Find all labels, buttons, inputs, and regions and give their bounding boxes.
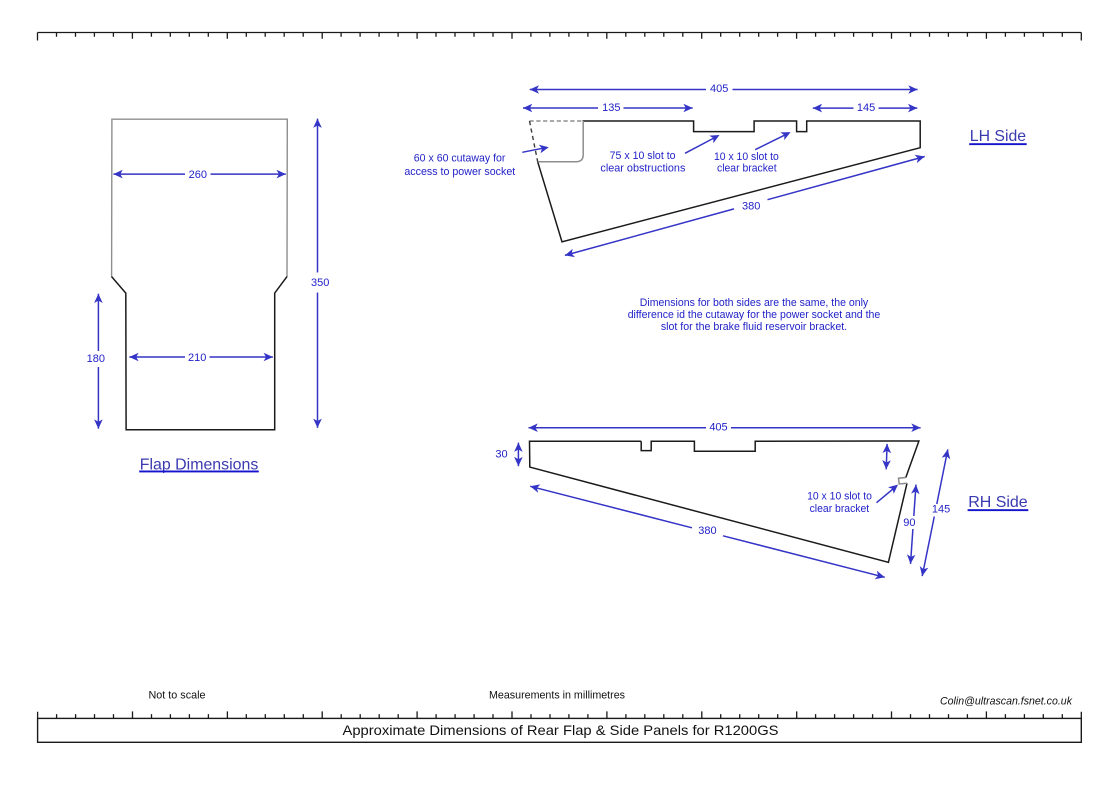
svg-text:30: 30 bbox=[495, 448, 507, 460]
svg-text:405: 405 bbox=[709, 421, 727, 433]
svg-text:135: 135 bbox=[602, 102, 620, 114]
svg-text:90: 90 bbox=[903, 517, 915, 529]
svg-text:clear bracket: clear bracket bbox=[810, 503, 870, 515]
svg-text:145: 145 bbox=[857, 102, 875, 114]
svg-text:380: 380 bbox=[698, 525, 716, 537]
svg-text:Colin@ultrascan.fsnet.co.uk: Colin@ultrascan.fsnet.co.uk bbox=[940, 695, 1072, 707]
svg-text:180: 180 bbox=[87, 353, 105, 365]
svg-text:RH Side: RH Side bbox=[968, 494, 1028, 511]
svg-text:260: 260 bbox=[189, 169, 207, 181]
svg-text:clear obstructions: clear obstructions bbox=[600, 163, 685, 175]
svg-text:LH Side: LH Side bbox=[970, 128, 1026, 145]
svg-text:405: 405 bbox=[710, 83, 728, 95]
svg-text:Dimensions for both sides are: Dimensions for both sides are the same, … bbox=[640, 297, 869, 309]
svg-text:Measurements in millimetres: Measurements in millimetres bbox=[489, 689, 625, 701]
svg-text:access to power socket: access to power socket bbox=[404, 166, 515, 178]
svg-text:380: 380 bbox=[742, 200, 760, 212]
svg-text:145: 145 bbox=[932, 504, 950, 516]
svg-text:60 x 60 cutaway for: 60 x 60 cutaway for bbox=[414, 153, 506, 165]
svg-text:10 x 10 slot to: 10 x 10 slot to bbox=[807, 491, 872, 503]
svg-text:75 x 10 slot to: 75 x 10 slot to bbox=[610, 150, 676, 162]
svg-text:210: 210 bbox=[188, 352, 206, 364]
svg-text:Approximate Dimensions of Rear: Approximate Dimensions of Rear Flap & Si… bbox=[343, 722, 779, 738]
svg-text:Not to scale: Not to scale bbox=[149, 689, 206, 701]
svg-text:slot for the brake fluid reser: slot for the brake fluid reservoir brack… bbox=[661, 321, 847, 333]
svg-text:clear bracket: clear bracket bbox=[717, 163, 777, 175]
svg-text:350: 350 bbox=[311, 277, 329, 289]
svg-text:10 x 10 slot to: 10 x 10 slot to bbox=[714, 151, 779, 163]
svg-text:difference id the cutaway for: difference id the cutaway for the power … bbox=[628, 309, 881, 321]
